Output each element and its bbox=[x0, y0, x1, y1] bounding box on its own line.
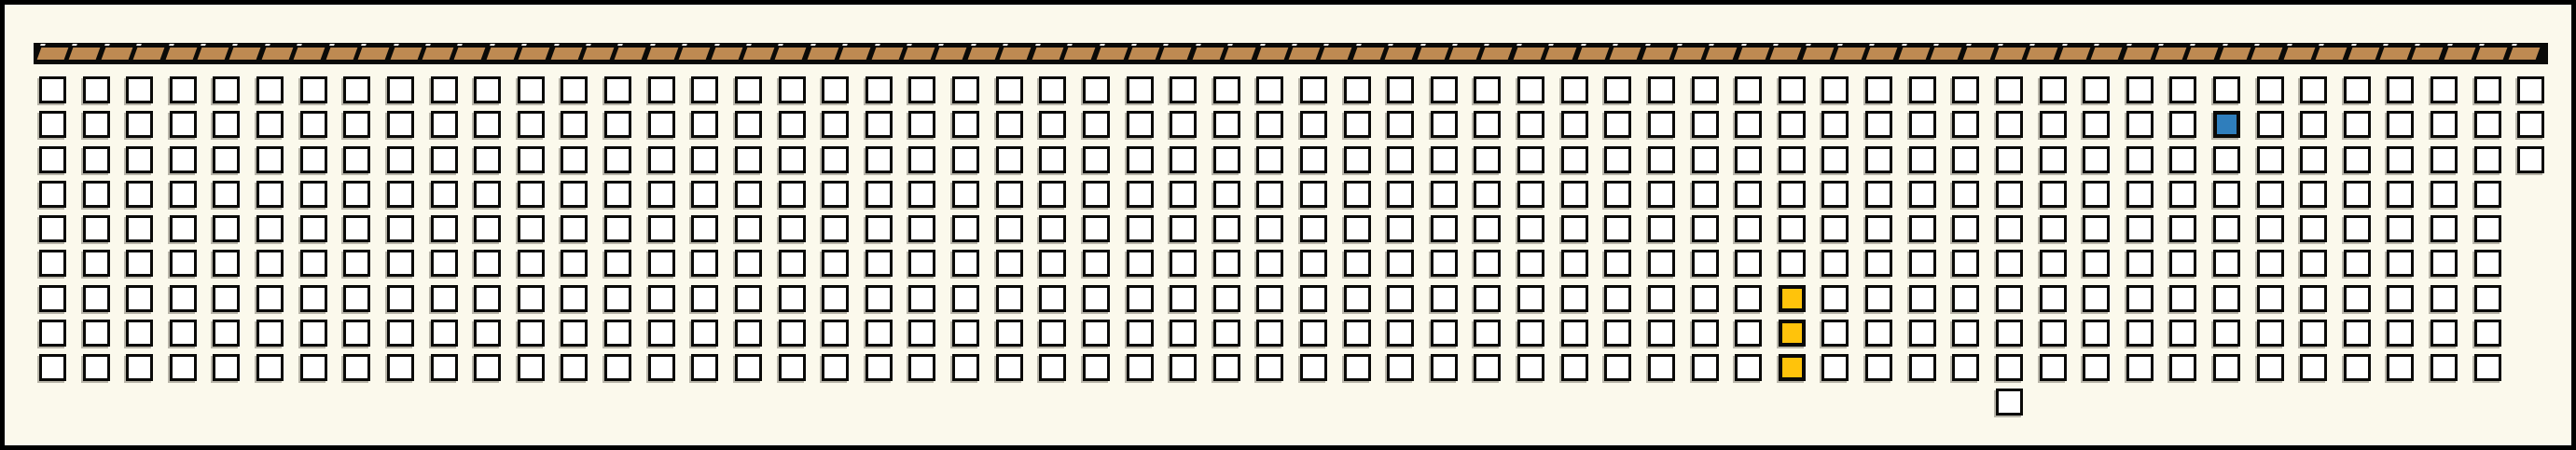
grid-cell[interactable] bbox=[431, 354, 458, 381]
grid-cell[interactable] bbox=[387, 320, 414, 347]
grid-cell[interactable] bbox=[691, 111, 718, 138]
grid-cell[interactable] bbox=[779, 354, 806, 381]
grid-cell[interactable] bbox=[1604, 76, 1631, 103]
grid-cell[interactable] bbox=[2257, 215, 2284, 242]
grid-cell[interactable] bbox=[1604, 320, 1631, 347]
grid-cell[interactable] bbox=[1127, 111, 1154, 138]
grid-cell[interactable] bbox=[1127, 320, 1154, 347]
grid-cell[interactable] bbox=[2040, 111, 2067, 138]
grid-cell[interactable] bbox=[1561, 354, 1588, 381]
grid-cell[interactable] bbox=[604, 76, 631, 103]
grid-cell[interactable] bbox=[1083, 76, 1110, 103]
grid-cell[interactable] bbox=[996, 354, 1023, 381]
grid-cell[interactable] bbox=[1865, 181, 1892, 208]
grid-cell[interactable] bbox=[2257, 181, 2284, 208]
grid-cell[interactable] bbox=[691, 215, 718, 242]
grid-cell[interactable] bbox=[39, 146, 66, 173]
grid-cell[interactable] bbox=[1170, 320, 1197, 347]
grid-cell[interactable] bbox=[1821, 285, 1849, 312]
grid-cell[interactable] bbox=[996, 146, 1023, 173]
grid-cell[interactable] bbox=[1170, 250, 1197, 277]
grid-cell[interactable] bbox=[1039, 146, 1066, 173]
grid-cell[interactable] bbox=[866, 111, 893, 138]
grid-cell[interactable] bbox=[1127, 76, 1154, 103]
grid-cell[interactable] bbox=[83, 320, 110, 347]
grid-cell[interactable] bbox=[343, 181, 370, 208]
grid-cell[interactable] bbox=[1952, 111, 1979, 138]
grid-cell[interactable] bbox=[952, 320, 979, 347]
grid-cell[interactable] bbox=[2083, 111, 2110, 138]
grid-cell[interactable] bbox=[2169, 76, 2196, 103]
grid-cell[interactable] bbox=[1039, 250, 1066, 277]
grid-cell[interactable] bbox=[1952, 250, 1979, 277]
grid-cell[interactable] bbox=[822, 76, 849, 103]
grid-cell[interactable] bbox=[126, 285, 153, 312]
grid-cell[interactable] bbox=[1213, 250, 1240, 277]
grid-cell[interactable] bbox=[648, 111, 675, 138]
grid-cell[interactable] bbox=[1692, 215, 1719, 242]
grid-cell[interactable] bbox=[1604, 181, 1631, 208]
grid-cell[interactable] bbox=[1083, 181, 1110, 208]
grid-cell[interactable] bbox=[126, 320, 153, 347]
grid-cell[interactable] bbox=[1039, 354, 1066, 381]
grid-cell[interactable] bbox=[2040, 181, 2067, 208]
grid-cell[interactable] bbox=[1865, 320, 1892, 347]
grid-cell[interactable] bbox=[1431, 250, 1458, 277]
grid-cell[interactable] bbox=[474, 285, 501, 312]
grid-cell[interactable] bbox=[2169, 320, 2196, 347]
grid-cell[interactable] bbox=[2126, 111, 2154, 138]
grid-cell[interactable] bbox=[1083, 250, 1110, 277]
grid-cell[interactable] bbox=[779, 250, 806, 277]
grid-cell[interactable] bbox=[300, 285, 327, 312]
grid-cell[interactable] bbox=[604, 320, 631, 347]
grid-cell[interactable] bbox=[126, 181, 153, 208]
grid-cell[interactable] bbox=[1604, 354, 1631, 381]
grid-cell[interactable] bbox=[256, 285, 284, 312]
grid-cell[interactable] bbox=[1517, 146, 1544, 173]
grid-cell[interactable] bbox=[1996, 389, 2023, 416]
grid-cell[interactable] bbox=[431, 250, 458, 277]
grid-cell[interactable] bbox=[39, 215, 66, 242]
grid-cell[interactable] bbox=[126, 76, 153, 103]
grid-cell[interactable] bbox=[866, 76, 893, 103]
grid-cell[interactable] bbox=[779, 320, 806, 347]
grid-cell[interactable] bbox=[952, 76, 979, 103]
grid-cell[interactable] bbox=[431, 181, 458, 208]
grid-cell[interactable] bbox=[1213, 111, 1240, 138]
grid-cell[interactable] bbox=[2169, 215, 2196, 242]
grid-cell[interactable] bbox=[2126, 285, 2154, 312]
grid-cell[interactable] bbox=[2126, 320, 2154, 347]
grid-cell[interactable] bbox=[1692, 250, 1719, 277]
grid-cell[interactable] bbox=[2344, 111, 2371, 138]
grid-cell[interactable] bbox=[83, 285, 110, 312]
grid-cell[interactable] bbox=[2474, 146, 2501, 173]
grid-cell[interactable] bbox=[300, 215, 327, 242]
grid-cell[interactable] bbox=[1909, 354, 1936, 381]
grid-cell[interactable] bbox=[648, 250, 675, 277]
grid-cell[interactable] bbox=[996, 215, 1023, 242]
grid-cell[interactable] bbox=[908, 76, 935, 103]
grid-cell[interactable] bbox=[343, 111, 370, 138]
grid-cell[interactable] bbox=[387, 285, 414, 312]
grid-cell[interactable] bbox=[1431, 285, 1458, 312]
grid-cell[interactable] bbox=[126, 215, 153, 242]
grid-cell[interactable] bbox=[1213, 354, 1240, 381]
grid-cell[interactable] bbox=[604, 181, 631, 208]
grid-cell[interactable] bbox=[952, 181, 979, 208]
grid-cell[interactable] bbox=[2387, 76, 2414, 103]
grid-cell[interactable] bbox=[1256, 354, 1283, 381]
grid-cell[interactable] bbox=[2474, 215, 2501, 242]
grid-cell[interactable] bbox=[1865, 354, 1892, 381]
grid-cell[interactable] bbox=[1865, 215, 1892, 242]
grid-cell[interactable] bbox=[1735, 181, 1762, 208]
grid-cell[interactable] bbox=[2257, 76, 2284, 103]
grid-cell[interactable] bbox=[170, 111, 197, 138]
grid-cell[interactable] bbox=[39, 285, 66, 312]
grid-cell[interactable] bbox=[735, 215, 762, 242]
grid-cell[interactable] bbox=[908, 354, 935, 381]
grid-cell[interactable] bbox=[1821, 354, 1849, 381]
grid-cell[interactable] bbox=[2474, 285, 2501, 312]
grid-cell[interactable] bbox=[2169, 354, 2196, 381]
grid-cell[interactable] bbox=[474, 354, 501, 381]
grid-cell[interactable] bbox=[1909, 146, 1936, 173]
grid-cell[interactable] bbox=[1648, 181, 1675, 208]
grid-cell[interactable] bbox=[952, 146, 979, 173]
grid-cell[interactable] bbox=[1474, 285, 1501, 312]
grid-cell[interactable] bbox=[1692, 285, 1719, 312]
grid-cell[interactable] bbox=[996, 76, 1023, 103]
grid-cell[interactable] bbox=[996, 111, 1023, 138]
grid-cell[interactable] bbox=[2040, 215, 2067, 242]
grid-cell[interactable] bbox=[1039, 285, 1066, 312]
grid-cell[interactable] bbox=[387, 354, 414, 381]
grid-cell[interactable] bbox=[2431, 146, 2458, 173]
grid-cell[interactable] bbox=[952, 285, 979, 312]
grid-cell[interactable] bbox=[126, 146, 153, 173]
grid-cell[interactable] bbox=[474, 76, 501, 103]
grid-cell[interactable] bbox=[213, 320, 240, 347]
grid-cell[interactable] bbox=[2344, 181, 2371, 208]
grid-cell[interactable] bbox=[1604, 146, 1631, 173]
grid-cell[interactable] bbox=[1952, 76, 1979, 103]
grid-cell[interactable] bbox=[1083, 111, 1110, 138]
grid-cell[interactable] bbox=[561, 354, 588, 381]
grid-cell[interactable] bbox=[866, 320, 893, 347]
grid-cell[interactable] bbox=[822, 354, 849, 381]
grid-cell[interactable] bbox=[1692, 181, 1719, 208]
grid-cell[interactable] bbox=[1996, 146, 2023, 173]
grid-cell[interactable] bbox=[2517, 76, 2544, 103]
grid-cell[interactable] bbox=[2517, 111, 2544, 138]
grid-cell[interactable] bbox=[1213, 320, 1240, 347]
grid-cell[interactable] bbox=[2169, 181, 2196, 208]
grid-cell[interactable] bbox=[387, 146, 414, 173]
grid-cell[interactable] bbox=[952, 111, 979, 138]
grid-cell[interactable] bbox=[1300, 354, 1327, 381]
grid-cell[interactable] bbox=[779, 111, 806, 138]
grid-cell[interactable] bbox=[908, 250, 935, 277]
grid-cell[interactable] bbox=[1996, 320, 2023, 347]
grid-cell[interactable] bbox=[1952, 215, 1979, 242]
grid-cell[interactable] bbox=[2387, 181, 2414, 208]
grid-cell[interactable] bbox=[474, 111, 501, 138]
grid-cell[interactable] bbox=[561, 215, 588, 242]
grid-cell[interactable] bbox=[1952, 146, 1979, 173]
grid-cell[interactable] bbox=[2083, 215, 2110, 242]
grid-cell[interactable] bbox=[1170, 111, 1197, 138]
grid-cell[interactable] bbox=[691, 250, 718, 277]
grid-cell[interactable] bbox=[1127, 181, 1154, 208]
grid-cell[interactable] bbox=[1256, 76, 1283, 103]
grid-cell[interactable] bbox=[2300, 215, 2327, 242]
grid-cell[interactable] bbox=[1517, 111, 1544, 138]
grid-cell[interactable] bbox=[779, 76, 806, 103]
grid-cell[interactable] bbox=[735, 76, 762, 103]
grid-cell[interactable] bbox=[2387, 215, 2414, 242]
grid-cell[interactable] bbox=[1648, 285, 1675, 312]
grid-cell[interactable] bbox=[2257, 250, 2284, 277]
grid-cell[interactable] bbox=[1127, 285, 1154, 312]
grid-cell[interactable] bbox=[170, 320, 197, 347]
grid-cell[interactable] bbox=[1909, 76, 1936, 103]
grid-cell[interactable] bbox=[1648, 250, 1675, 277]
grid-cell[interactable] bbox=[300, 146, 327, 173]
grid-cell[interactable] bbox=[1779, 250, 1806, 277]
grid-cell[interactable] bbox=[648, 320, 675, 347]
grid-cell[interactable] bbox=[2431, 76, 2458, 103]
grid-cell[interactable] bbox=[1213, 181, 1240, 208]
grid-cell[interactable] bbox=[256, 215, 284, 242]
grid-cell[interactable] bbox=[1561, 285, 1588, 312]
grid-cell[interactable] bbox=[83, 146, 110, 173]
grid-cell[interactable] bbox=[648, 181, 675, 208]
grid-cell[interactable] bbox=[1561, 146, 1588, 173]
grid-cell[interactable] bbox=[735, 320, 762, 347]
grid-cell[interactable] bbox=[431, 285, 458, 312]
grid-cell[interactable] bbox=[2040, 250, 2067, 277]
grid-cell[interactable] bbox=[213, 215, 240, 242]
grid-cell[interactable] bbox=[39, 354, 66, 381]
grid-cell[interactable] bbox=[213, 250, 240, 277]
grid-cell[interactable] bbox=[2213, 215, 2240, 242]
grid-cell[interactable] bbox=[1474, 111, 1501, 138]
grid-cell[interactable] bbox=[1648, 215, 1675, 242]
grid-cell[interactable] bbox=[387, 181, 414, 208]
grid-cell[interactable] bbox=[300, 181, 327, 208]
grid-cell[interactable] bbox=[431, 320, 458, 347]
grid-cell[interactable] bbox=[996, 285, 1023, 312]
grid-cell[interactable] bbox=[779, 285, 806, 312]
grid-cell[interactable] bbox=[2344, 285, 2371, 312]
grid-cell[interactable] bbox=[2126, 250, 2154, 277]
grid-cell[interactable] bbox=[170, 146, 197, 173]
grid-cell[interactable] bbox=[170, 285, 197, 312]
grid-cell[interactable] bbox=[996, 320, 1023, 347]
grid-cell[interactable] bbox=[343, 285, 370, 312]
grid-cell[interactable] bbox=[83, 250, 110, 277]
grid-cell[interactable] bbox=[952, 250, 979, 277]
grid-cell[interactable] bbox=[2344, 215, 2371, 242]
grid-cell[interactable] bbox=[2257, 320, 2284, 347]
grid-cell[interactable] bbox=[866, 250, 893, 277]
grid-cell[interactable] bbox=[2300, 250, 2327, 277]
grid-cell[interactable] bbox=[170, 181, 197, 208]
grid-cell[interactable] bbox=[1170, 285, 1197, 312]
grid-cell[interactable] bbox=[256, 76, 284, 103]
grid-cell[interactable] bbox=[1604, 215, 1631, 242]
grid-cell[interactable] bbox=[866, 146, 893, 173]
grid-cell[interactable] bbox=[256, 250, 284, 277]
grid-cell[interactable] bbox=[518, 250, 545, 277]
grid-cell[interactable] bbox=[300, 111, 327, 138]
grid-cell[interactable] bbox=[1821, 146, 1849, 173]
grid-cell[interactable] bbox=[343, 250, 370, 277]
grid-cell[interactable] bbox=[908, 181, 935, 208]
grid-cell[interactable] bbox=[1996, 76, 2023, 103]
grid-cell[interactable] bbox=[1604, 250, 1631, 277]
grid-cell[interactable] bbox=[2083, 354, 2110, 381]
grid-cell[interactable] bbox=[170, 354, 197, 381]
grid-cell[interactable] bbox=[1083, 320, 1110, 347]
grid-cell[interactable] bbox=[343, 354, 370, 381]
grid-cell[interactable] bbox=[1300, 285, 1327, 312]
grid-cell[interactable] bbox=[2387, 250, 2414, 277]
grid-cell[interactable] bbox=[1300, 215, 1327, 242]
grid-cell[interactable] bbox=[1909, 111, 1936, 138]
grid-cell[interactable] bbox=[908, 146, 935, 173]
grid-cell[interactable] bbox=[1735, 146, 1762, 173]
grid-cell[interactable] bbox=[474, 215, 501, 242]
grid-cell[interactable] bbox=[1300, 111, 1327, 138]
grid-cell[interactable] bbox=[1344, 320, 1371, 347]
grid-cell[interactable] bbox=[1039, 215, 1066, 242]
grid-cell[interactable] bbox=[1431, 320, 1458, 347]
grid-cell[interactable] bbox=[561, 250, 588, 277]
grid-cell[interactable] bbox=[996, 181, 1023, 208]
grid-cell[interactable] bbox=[735, 354, 762, 381]
grid-cell[interactable] bbox=[1561, 76, 1588, 103]
grid-cell[interactable] bbox=[1344, 285, 1371, 312]
grid-cell[interactable] bbox=[518, 285, 545, 312]
grid-cell[interactable] bbox=[2387, 354, 2414, 381]
grid-cell[interactable] bbox=[1865, 146, 1892, 173]
grid-cell[interactable] bbox=[1952, 320, 1979, 347]
grid-cell[interactable] bbox=[1735, 111, 1762, 138]
grid-cell[interactable] bbox=[1561, 250, 1588, 277]
grid-cell[interactable] bbox=[1821, 76, 1849, 103]
grid-cell[interactable] bbox=[1300, 76, 1327, 103]
grid-cell[interactable] bbox=[39, 76, 66, 103]
grid-cell[interactable] bbox=[256, 181, 284, 208]
grid-cell[interactable] bbox=[1517, 215, 1544, 242]
grid-cell[interactable] bbox=[2040, 285, 2067, 312]
grid-cell[interactable] bbox=[1256, 250, 1283, 277]
grid-cell[interactable] bbox=[1387, 146, 1414, 173]
grid-cell[interactable] bbox=[604, 354, 631, 381]
grid-cell[interactable] bbox=[2213, 181, 2240, 208]
grid-cell[interactable] bbox=[213, 146, 240, 173]
grid-cell[interactable] bbox=[648, 146, 675, 173]
grid-cell[interactable] bbox=[1344, 215, 1371, 242]
grid-cell[interactable] bbox=[1996, 250, 2023, 277]
grid-cell[interactable] bbox=[1692, 354, 1719, 381]
grid-cell[interactable] bbox=[2431, 215, 2458, 242]
grid-cell[interactable] bbox=[1170, 215, 1197, 242]
grid-cell[interactable] bbox=[2300, 285, 2327, 312]
grid-cell[interactable] bbox=[1387, 285, 1414, 312]
grid-cell[interactable] bbox=[2300, 320, 2327, 347]
grid-cell[interactable] bbox=[126, 354, 153, 381]
grid-cell[interactable] bbox=[1648, 146, 1675, 173]
grid-cell[interactable] bbox=[1256, 285, 1283, 312]
grid-cell[interactable] bbox=[1083, 146, 1110, 173]
grid-cell[interactable] bbox=[735, 285, 762, 312]
grid-cell[interactable] bbox=[2257, 111, 2284, 138]
grid-cell[interactable] bbox=[561, 146, 588, 173]
grid-cell[interactable] bbox=[1127, 146, 1154, 173]
grid-cell[interactable] bbox=[300, 250, 327, 277]
grid-cell[interactable] bbox=[2344, 146, 2371, 173]
grid-cell[interactable] bbox=[2387, 146, 2414, 173]
grid-cell[interactable] bbox=[2344, 320, 2371, 347]
grid-cell[interactable] bbox=[1821, 181, 1849, 208]
grid-cell[interactable] bbox=[431, 76, 458, 103]
grid-cell[interactable] bbox=[866, 181, 893, 208]
grid-cell[interactable] bbox=[518, 354, 545, 381]
grid-cell[interactable] bbox=[2257, 354, 2284, 381]
grid-cell[interactable] bbox=[1039, 111, 1066, 138]
grid-cell[interactable] bbox=[1648, 111, 1675, 138]
grid-cell[interactable] bbox=[1127, 215, 1154, 242]
grid-cell[interactable] bbox=[1344, 146, 1371, 173]
grid-cell[interactable] bbox=[908, 320, 935, 347]
grid-cell[interactable] bbox=[1821, 215, 1849, 242]
grid-cell[interactable] bbox=[735, 250, 762, 277]
grid-cell[interactable] bbox=[387, 215, 414, 242]
grid-cell[interactable] bbox=[1170, 181, 1197, 208]
grid-cell[interactable] bbox=[1517, 354, 1544, 381]
grid-cell[interactable] bbox=[83, 354, 110, 381]
grid-cell[interactable] bbox=[1865, 111, 1892, 138]
grid-cell[interactable] bbox=[170, 250, 197, 277]
grid-cell[interactable] bbox=[518, 181, 545, 208]
grid-cell[interactable] bbox=[691, 354, 718, 381]
grid-cell[interactable] bbox=[1865, 285, 1892, 312]
grid-cell[interactable] bbox=[2213, 320, 2240, 347]
grid-cell[interactable] bbox=[822, 111, 849, 138]
grid-cell[interactable] bbox=[1039, 76, 1066, 103]
grid-cell[interactable] bbox=[474, 181, 501, 208]
grid-cell[interactable] bbox=[1735, 250, 1762, 277]
grid-cell[interactable] bbox=[474, 320, 501, 347]
grid-cell[interactable] bbox=[474, 250, 501, 277]
grid-cell[interactable] bbox=[1779, 181, 1806, 208]
grid-cell[interactable] bbox=[691, 285, 718, 312]
grid-cell[interactable] bbox=[1387, 76, 1414, 103]
grid-cell[interactable] bbox=[1909, 181, 1936, 208]
grid-cell[interactable] bbox=[213, 181, 240, 208]
grid-cell[interactable] bbox=[2083, 250, 2110, 277]
grid-cell[interactable] bbox=[1909, 320, 1936, 347]
grid-cell[interactable] bbox=[822, 285, 849, 312]
grid-cell[interactable] bbox=[2083, 285, 2110, 312]
grid-cell[interactable] bbox=[256, 111, 284, 138]
grid-cell[interactable] bbox=[1604, 111, 1631, 138]
